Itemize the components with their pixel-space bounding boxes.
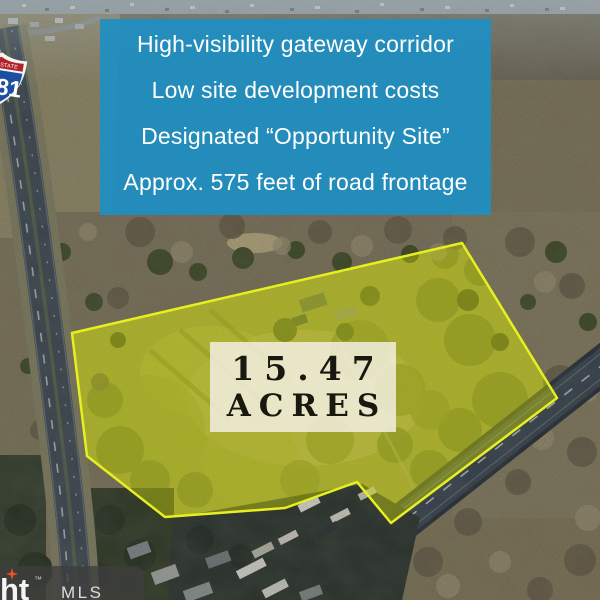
banner-line-3: Designated “Opportunity Site”	[100, 124, 491, 149]
acreage-badge: 15.47 ACRES	[210, 342, 396, 432]
info-banner: High-visibility gateway corridor Low sit…	[100, 19, 491, 215]
acreage-unit: ACRES	[219, 390, 388, 422]
shield-number: 81	[0, 73, 24, 103]
banner-line-4: Approx. 575 feet of road frontage	[100, 170, 491, 195]
banner-line-2: Low site development costs	[100, 78, 491, 103]
acreage-value: 15.47	[221, 352, 384, 386]
property-listing-aerial-photo: 15.47 ACRES High-visibility gateway corr…	[0, 0, 600, 600]
watermark-suffix: MLS	[61, 583, 103, 600]
spark-icon	[6, 567, 18, 585]
banner-line-1: High-visibility gateway corridor	[100, 32, 491, 57]
brightmls-watermark: ht ™ MLS	[0, 566, 144, 600]
trademark-symbol: ™	[34, 575, 42, 584]
